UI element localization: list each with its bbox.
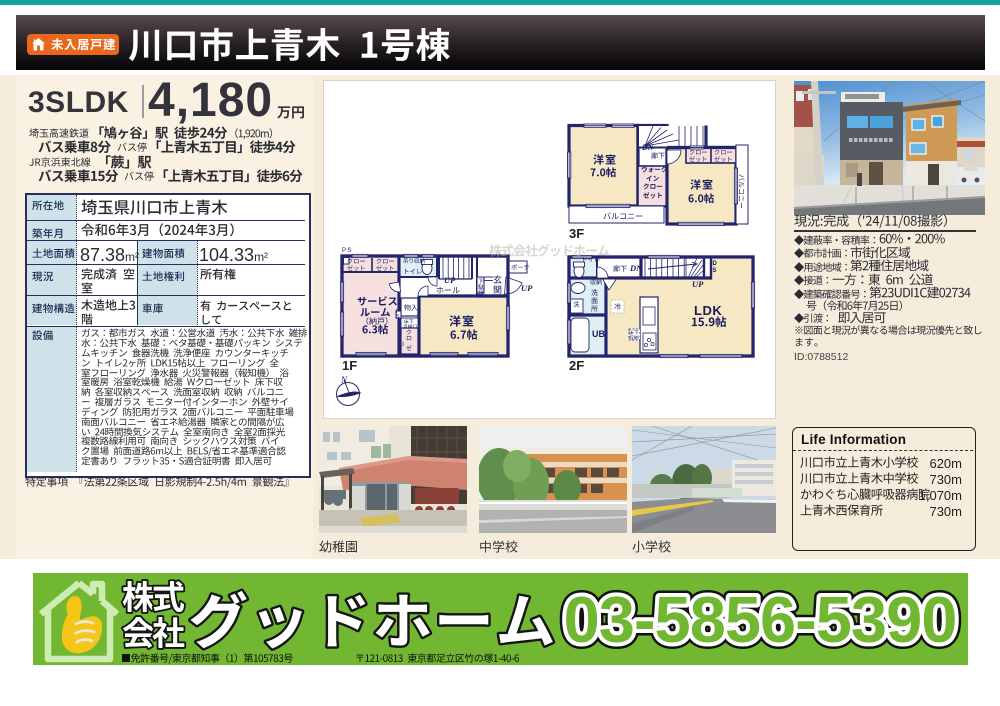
svg-text:03-5856-5390: 03-5856-5390 — [564, 583, 957, 656]
